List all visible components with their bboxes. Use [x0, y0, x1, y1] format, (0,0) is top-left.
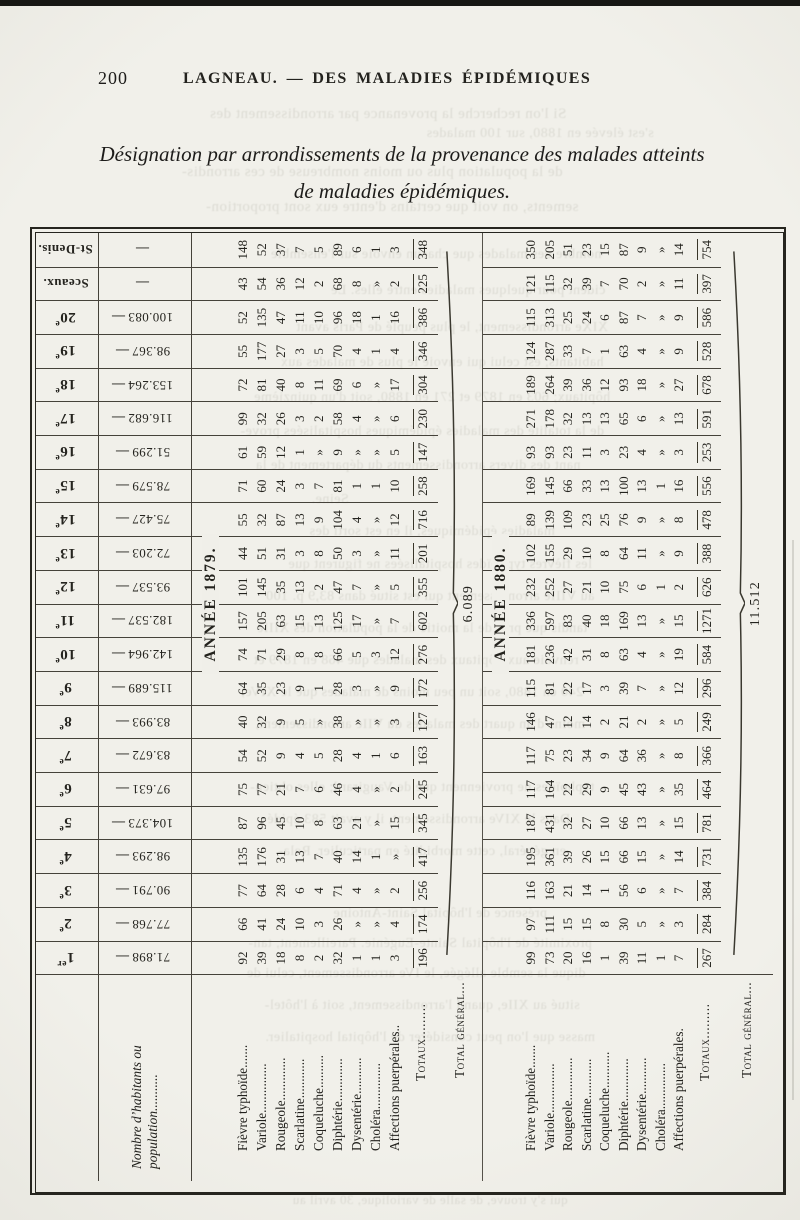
cell-18e: 72 — [233, 368, 252, 402]
cell-8e: 2 — [596, 705, 615, 739]
totaux-cell-st-denis: 754 — [688, 233, 720, 267]
sum-rule — [413, 644, 414, 664]
sum-rule — [413, 374, 414, 394]
disease-label: Dysentérie........... — [347, 974, 366, 1180]
cell-10e: 5 — [347, 637, 366, 671]
cell-sceaux: 54 — [252, 267, 271, 301]
disease-row-variole: Variole...............731111633614311647… — [540, 233, 559, 1181]
disease-row-coqueluche: Coqueluche...........1811510992381810825… — [596, 233, 615, 1181]
cell-15e: 33 — [577, 469, 596, 503]
cell-8e: » — [366, 705, 385, 739]
totaux-cell-11e: 1271 — [688, 604, 720, 638]
sum-rule — [696, 408, 697, 428]
cell-18e: 27 — [670, 368, 689, 402]
sum-rule — [413, 408, 414, 428]
cell-18e: 17 — [385, 368, 404, 402]
cell-18e: 81 — [252, 368, 271, 402]
total-general-value: 6.089 — [461, 233, 477, 974]
population-cell-20e: 100.083 — — [98, 300, 191, 334]
cell-6e: 6 — [309, 772, 328, 806]
col-header-5e: 5e — [36, 806, 98, 840]
disease-label: Diphtérie............. — [328, 974, 347, 1180]
totaux-cell-4e: 731 — [688, 840, 720, 874]
cell-20e: 6 — [596, 300, 615, 334]
cell-4e: 31 — [271, 840, 290, 874]
cell-10e: » — [651, 637, 670, 671]
cell-14e: 13 — [290, 502, 309, 536]
bleedthrough-text: Si l'on recherche la provenance par arro… — [210, 106, 567, 123]
cell-12e: 145 — [252, 570, 271, 604]
disease-row-fi-vre-typho-de: Fièvre typhoïde.......999711619518711711… — [522, 233, 541, 1181]
cell-8e: 32 — [252, 705, 271, 739]
cell-11e: 157 — [233, 604, 252, 638]
cell-10e: 66 — [328, 637, 347, 671]
totaux-cell-20e: 386 — [404, 300, 438, 334]
cell-15e: 16 — [670, 469, 689, 503]
population-cell-17e: 116.682 — — [98, 401, 191, 435]
cell-st-denis: 1 — [366, 233, 385, 267]
cell-18e: » — [366, 368, 385, 402]
col-header-sceaux: Sceaux. — [36, 267, 98, 301]
cell-14e: » — [651, 502, 670, 536]
cell-5e: » — [366, 806, 385, 840]
cell-13e: 50 — [328, 536, 347, 570]
cell-1er: 1 — [347, 941, 366, 975]
population-cell-19e: 98.367 — — [98, 334, 191, 368]
totaux-cell-6e: 464 — [688, 772, 720, 806]
cell-15e: 145 — [540, 469, 559, 503]
cell-15e: 71 — [233, 469, 252, 503]
cell-17e: 13 — [577, 401, 596, 435]
table-caption-line1: Désignation par arrondissements de la pr… — [40, 136, 764, 173]
scanned-book-page: { "page": { "number": "200", "running_ti… — [0, 0, 800, 1220]
cell-2e: 4 — [385, 907, 404, 941]
cell-16e: 23 — [614, 435, 633, 469]
cell-8e: 9 — [271, 705, 290, 739]
cell-10e: 29 — [271, 637, 290, 671]
totaux-row: Totaux.........2672843847317814643662492… — [688, 233, 720, 1181]
cell-st-denis: 6 — [347, 233, 366, 267]
cell-8e: » — [309, 705, 328, 739]
cell-6e: 2 — [385, 772, 404, 806]
cell-16e: 11 — [577, 435, 596, 469]
totaux-cell-12e: 626 — [688, 570, 720, 604]
disease-label: Variole............... — [252, 974, 271, 1180]
cell-10e: 12 — [385, 637, 404, 671]
cell-4e: 361 — [540, 840, 559, 874]
cell-3e: 7 — [670, 873, 689, 907]
sum-rule — [696, 442, 697, 462]
cell-st-denis: » — [651, 233, 670, 267]
cell-17e: 2 — [309, 401, 328, 435]
cell-7e: 8 — [670, 738, 689, 772]
cell-16e: 3 — [670, 435, 689, 469]
cell-9e: 39 — [614, 671, 633, 705]
cell-10e: 42 — [559, 637, 578, 671]
cell-5e: 187 — [522, 806, 541, 840]
cell-1er: 2 — [309, 941, 328, 975]
cell-st-denis: 7 — [290, 233, 309, 267]
cell-9e: 1 — [309, 671, 328, 705]
cell-sceaux: 32 — [559, 267, 578, 301]
cell-7e: 23 — [559, 738, 578, 772]
population-cell-6e: 97.631 — — [98, 772, 191, 806]
col-header-14e: 14e — [36, 502, 98, 536]
cell-5e: 87 — [233, 806, 252, 840]
cell-st-denis: 9 — [633, 233, 652, 267]
cell-17e: 6 — [385, 401, 404, 435]
sum-rule — [696, 644, 697, 664]
cell-18e: 189 — [522, 368, 541, 402]
cell-20e: 11 — [290, 300, 309, 334]
disease-label: Fièvre typhoïde....... — [233, 974, 252, 1180]
totaux-cell-15e: 258 — [404, 469, 438, 503]
disease-row-affections-puerp-rales: Affections puerpérales..342»152639127511… — [385, 233, 404, 1181]
disease-row-dysent-rie: Dysentérie...........1156151343362741361… — [633, 233, 652, 1181]
sum-rule — [413, 678, 414, 698]
col-header-4e: 4e — [36, 840, 98, 874]
cell-sceaux: » — [651, 267, 670, 301]
totaux-cell-2e: 284 — [688, 907, 720, 941]
cell-7e: 4 — [347, 738, 366, 772]
cell-6e: 45 — [614, 772, 633, 806]
cell-19e: 177 — [252, 334, 271, 368]
disease-row-dysent-rie: Dysentérie...........1»4142144»35177341»… — [347, 233, 366, 1181]
col-header-20e: 20e — [36, 300, 98, 334]
cell-18e: 8 — [290, 368, 309, 402]
cell-7e: » — [651, 738, 670, 772]
cell-9e: 3 — [596, 671, 615, 705]
cell-4e: 39 — [559, 840, 578, 874]
disease-label: Affections puerpérales. — [670, 974, 689, 1180]
cell-12e: 35 — [271, 570, 290, 604]
cell-5e: 8 — [309, 806, 328, 840]
sum-rule — [696, 307, 697, 327]
cell-14e: 9 — [309, 502, 328, 536]
cell-10e: 236 — [540, 637, 559, 671]
cell-5e: 15 — [385, 806, 404, 840]
cell-1er: 20 — [559, 941, 578, 975]
totaux-cell-16e: 147 — [404, 435, 438, 469]
totaux-label: Totaux......... — [688, 974, 720, 1180]
cell-20e: » — [651, 300, 670, 334]
cell-8e: 5 — [290, 705, 309, 739]
cell-17e: 32 — [252, 401, 271, 435]
cell-13e: » — [651, 536, 670, 570]
totaux-cell-4e: 417 — [404, 840, 438, 874]
sum-rule — [413, 914, 414, 934]
cell-15e: 1 — [366, 469, 385, 503]
cell-16e: 9 — [328, 435, 347, 469]
cell-12e: 7 — [347, 570, 366, 604]
disease-row-fi-vre-typho-de: Fièvre typhoïde.......926677135877554406… — [233, 233, 252, 1181]
cell-st-denis: 15 — [596, 233, 615, 267]
cell-7e: 6 — [385, 738, 404, 772]
sum-rule — [413, 779, 414, 799]
cell-16e: 61 — [233, 435, 252, 469]
cell-2e: 5 — [633, 907, 652, 941]
cell-9e: 35 — [252, 671, 271, 705]
cell-3e: 21 — [559, 873, 578, 907]
cell-2e: 3 — [670, 907, 689, 941]
cell-9e: 9 — [290, 671, 309, 705]
cell-8e: 38 — [328, 705, 347, 739]
cell-sceaux: 7 — [596, 267, 615, 301]
cell-9e: 3 — [347, 671, 366, 705]
totaux-cell-15e: 556 — [688, 469, 720, 503]
disease-label: Rougeole............. — [271, 974, 290, 1180]
cell-13e: 64 — [614, 536, 633, 570]
cell-sceaux: 2 — [309, 267, 328, 301]
sum-rule — [696, 678, 697, 698]
cell-1er: 1 — [596, 941, 615, 975]
cell-15e: 100 — [614, 469, 633, 503]
cell-8e: » — [347, 705, 366, 739]
cell-2e: 41 — [252, 907, 271, 941]
cell-19e: 124 — [522, 334, 541, 368]
cell-1er: 7 — [670, 941, 689, 975]
cell-st-denis: 148 — [233, 233, 252, 267]
cell-3e: 4 — [309, 873, 328, 907]
cell-1er: 39 — [614, 941, 633, 975]
population-cell-3e: 90.791 — — [98, 873, 191, 907]
cell-6e: 164 — [540, 772, 559, 806]
sum-rule — [696, 947, 697, 967]
cell-7e: 5 — [309, 738, 328, 772]
cell-11e: 17 — [347, 604, 366, 638]
year-label-1880: ANNÉE 1880. — [492, 233, 510, 975]
disease-row-chol-ra: Choléra..............1»»»»»»»»»»1»»1»»»»… — [651, 233, 670, 1181]
cell-sceaux: 115 — [540, 267, 559, 301]
cell-10e: 8 — [309, 637, 328, 671]
cell-13e: 11 — [633, 536, 652, 570]
cell-19e: 4 — [385, 334, 404, 368]
sum-rule — [413, 610, 414, 630]
cell-20e: 313 — [540, 300, 559, 334]
totaux-cell-10e: 276 — [404, 637, 438, 671]
cell-17e: 99 — [233, 401, 252, 435]
cell-11e: 18 — [596, 604, 615, 638]
population-cell-8e: 83.993 — — [98, 705, 191, 739]
cell-18e: 12 — [596, 368, 615, 402]
sum-rule — [696, 779, 697, 799]
cell-6e: » — [651, 772, 670, 806]
cell-14e: 25 — [596, 502, 615, 536]
cell-13e: 10 — [577, 536, 596, 570]
cell-6e: 7 — [290, 772, 309, 806]
cell-st-denis: 89 — [328, 233, 347, 267]
cell-19e: 287 — [540, 334, 559, 368]
cell-14e: » — [366, 502, 385, 536]
cell-19e: 4 — [347, 334, 366, 368]
sum-rule — [696, 374, 697, 394]
sum-rule — [413, 509, 414, 529]
col-header-11e: 11e — [36, 604, 98, 638]
cell-20e: 52 — [233, 300, 252, 334]
cell-4e: » — [385, 840, 404, 874]
cell-11e: 336 — [522, 604, 541, 638]
totaux-cell-11e: 602 — [404, 604, 438, 638]
cell-7e: 117 — [522, 738, 541, 772]
cell-12e: 1 — [651, 570, 670, 604]
cell-9e: 22 — [559, 671, 578, 705]
cell-20e: 7 — [633, 300, 652, 334]
cell-13e: 51 — [252, 536, 271, 570]
cell-14e: 12 — [385, 502, 404, 536]
totaux-cell-14e: 478 — [688, 502, 720, 536]
cell-1er: 18 — [271, 941, 290, 975]
col-header-st-denis: St-Denis. — [36, 233, 98, 267]
cell-2e: 15 — [577, 907, 596, 941]
disease-row-affections-puerp-rales: Affections puerpérales.73714153585121915… — [670, 233, 689, 1181]
sum-rule — [696, 610, 697, 630]
cell-14e: 87 — [271, 502, 290, 536]
cell-1er: 92 — [233, 941, 252, 975]
cell-7e: 28 — [328, 738, 347, 772]
disease-row-chol-ra: Choléra..............1»»1»»1»»3»»»»1»»»1… — [366, 233, 385, 1181]
cell-19e: 27 — [271, 334, 290, 368]
sum-rule — [413, 307, 414, 327]
population-cell-14e: 75.427 — — [98, 502, 191, 536]
cell-8e: 146 — [522, 705, 541, 739]
cell-9e: 17 — [577, 671, 596, 705]
cell-1er: 1 — [366, 941, 385, 975]
col-header-9e: 9e — [36, 671, 98, 705]
population-cell-15e: 78.579 — — [98, 469, 191, 503]
cell-4e: 14 — [347, 840, 366, 874]
cell-3e: 163 — [540, 873, 559, 907]
population-cell-4e: 98.293 — — [98, 840, 191, 874]
cell-18e: 40 — [271, 368, 290, 402]
cell-3e: 56 — [614, 873, 633, 907]
cell-19e: 63 — [614, 334, 633, 368]
totaux-cell-7e: 366 — [688, 738, 720, 772]
sum-rule — [413, 813, 414, 833]
sum-rule — [413, 239, 414, 260]
cell-8e: 2 — [633, 705, 652, 739]
cell-20e: 96 — [328, 300, 347, 334]
cell-14e: 109 — [559, 502, 578, 536]
cell-6e: » — [366, 772, 385, 806]
cell-13e: 8 — [309, 536, 328, 570]
cell-15e: 13 — [633, 469, 652, 503]
cell-14e: 139 — [540, 502, 559, 536]
totaux-cell-18e: 304 — [404, 368, 438, 402]
cell-st-denis: 14 — [670, 233, 689, 267]
cell-1er: 1 — [651, 941, 670, 975]
cell-3e: 71 — [328, 873, 347, 907]
cell-9e: 115 — [522, 671, 541, 705]
sum-rule — [413, 475, 414, 495]
cell-2e: » — [366, 907, 385, 941]
disease-row-variole: Variole...............394164176967752323… — [252, 233, 271, 1181]
disease-label: Scarlatine............ — [290, 974, 309, 1180]
totaux-cell-3e: 256 — [404, 873, 438, 907]
cell-18e: 264 — [540, 368, 559, 402]
disease-label: Choléra.............. — [651, 974, 670, 1180]
cell-6e: 46 — [328, 772, 347, 806]
sum-rule — [696, 813, 697, 833]
cell-11e: 169 — [614, 604, 633, 638]
totaux-cell-5e: 781 — [688, 806, 720, 840]
cell-13e: 11 — [385, 536, 404, 570]
cell-8e: » — [651, 705, 670, 739]
totaux-cell-19e: 528 — [688, 334, 720, 368]
col-header-7e: 7e — [36, 738, 98, 772]
disease-row-rougeole: Rougeole.............2015213932222312224… — [559, 233, 578, 1181]
population-cell-11e: 182.537 — — [98, 604, 191, 638]
cell-6e: 9 — [596, 772, 615, 806]
sum-rule — [696, 273, 697, 293]
col-header-8e: 8e — [36, 705, 98, 739]
population-cell-7e: 83.672 — — [98, 738, 191, 772]
sum-rule — [413, 273, 414, 293]
cell-st-denis: 51 — [559, 233, 578, 267]
cell-4e: 14 — [670, 840, 689, 874]
cell-12e: 2 — [309, 570, 328, 604]
cell-5e: » — [651, 806, 670, 840]
cell-20e: 18 — [347, 300, 366, 334]
sum-rule — [696, 543, 697, 563]
sum-rule — [696, 914, 697, 934]
cell-12e: 10 — [596, 570, 615, 604]
cell-sceaux: 36 — [271, 267, 290, 301]
cell-17e: 26 — [271, 401, 290, 435]
totaux-cell-st-denis: 348 — [404, 233, 438, 267]
totaux-cell-12e: 355 — [404, 570, 438, 604]
cell-17e: 4 — [347, 401, 366, 435]
total-general-cell: 6.089 — [438, 233, 482, 975]
cell-19e: 1 — [596, 334, 615, 368]
cell-2e: 10 — [290, 907, 309, 941]
col-header-10e: 10e — [36, 637, 98, 671]
cell-5e: 15 — [670, 806, 689, 840]
cell-5e: 13 — [633, 806, 652, 840]
totaux-cell-3e: 384 — [688, 873, 720, 907]
cell-sceaux: 70 — [614, 267, 633, 301]
cell-10e: 8 — [290, 637, 309, 671]
cell-11e: 40 — [577, 604, 596, 638]
cell-5e: 32 — [559, 806, 578, 840]
cell-2e: 15 — [559, 907, 578, 941]
cell-8e: 3 — [385, 705, 404, 739]
cell-10e: 19 — [670, 637, 689, 671]
cell-11e: 7 — [385, 604, 404, 638]
cell-8e: 12 — [559, 705, 578, 739]
cell-7e: 36 — [633, 738, 652, 772]
disease-label: Choléra.............. — [366, 974, 385, 1180]
cell-19e: 5 — [309, 334, 328, 368]
sum-rule — [696, 711, 697, 731]
cell-18e: 36 — [577, 368, 596, 402]
cell-13e: 3 — [347, 536, 366, 570]
col-header-6e: 6e — [36, 772, 98, 806]
cell-11e: » — [651, 604, 670, 638]
col-header-12e: 12e — [36, 570, 98, 604]
cell-18e: 11 — [309, 368, 328, 402]
population-cell-18e: 153.264 — — [98, 368, 191, 402]
cell-19e: » — [651, 334, 670, 368]
cell-16e: » — [651, 435, 670, 469]
rotated-table-container: 1er2e3e4e5e6e7e8e9e10e11e12e13e14e15e16e… — [36, 233, 772, 1181]
disease-label: Rougeole............. — [559, 974, 578, 1180]
cell-12e: 27 — [559, 570, 578, 604]
population-cell-10e: 142.964 — — [98, 637, 191, 671]
cell-19e: 9 — [670, 334, 689, 368]
cell-10e: 8 — [596, 637, 615, 671]
cell-4e: 195 — [522, 840, 541, 874]
cell-3e: 6 — [290, 873, 309, 907]
